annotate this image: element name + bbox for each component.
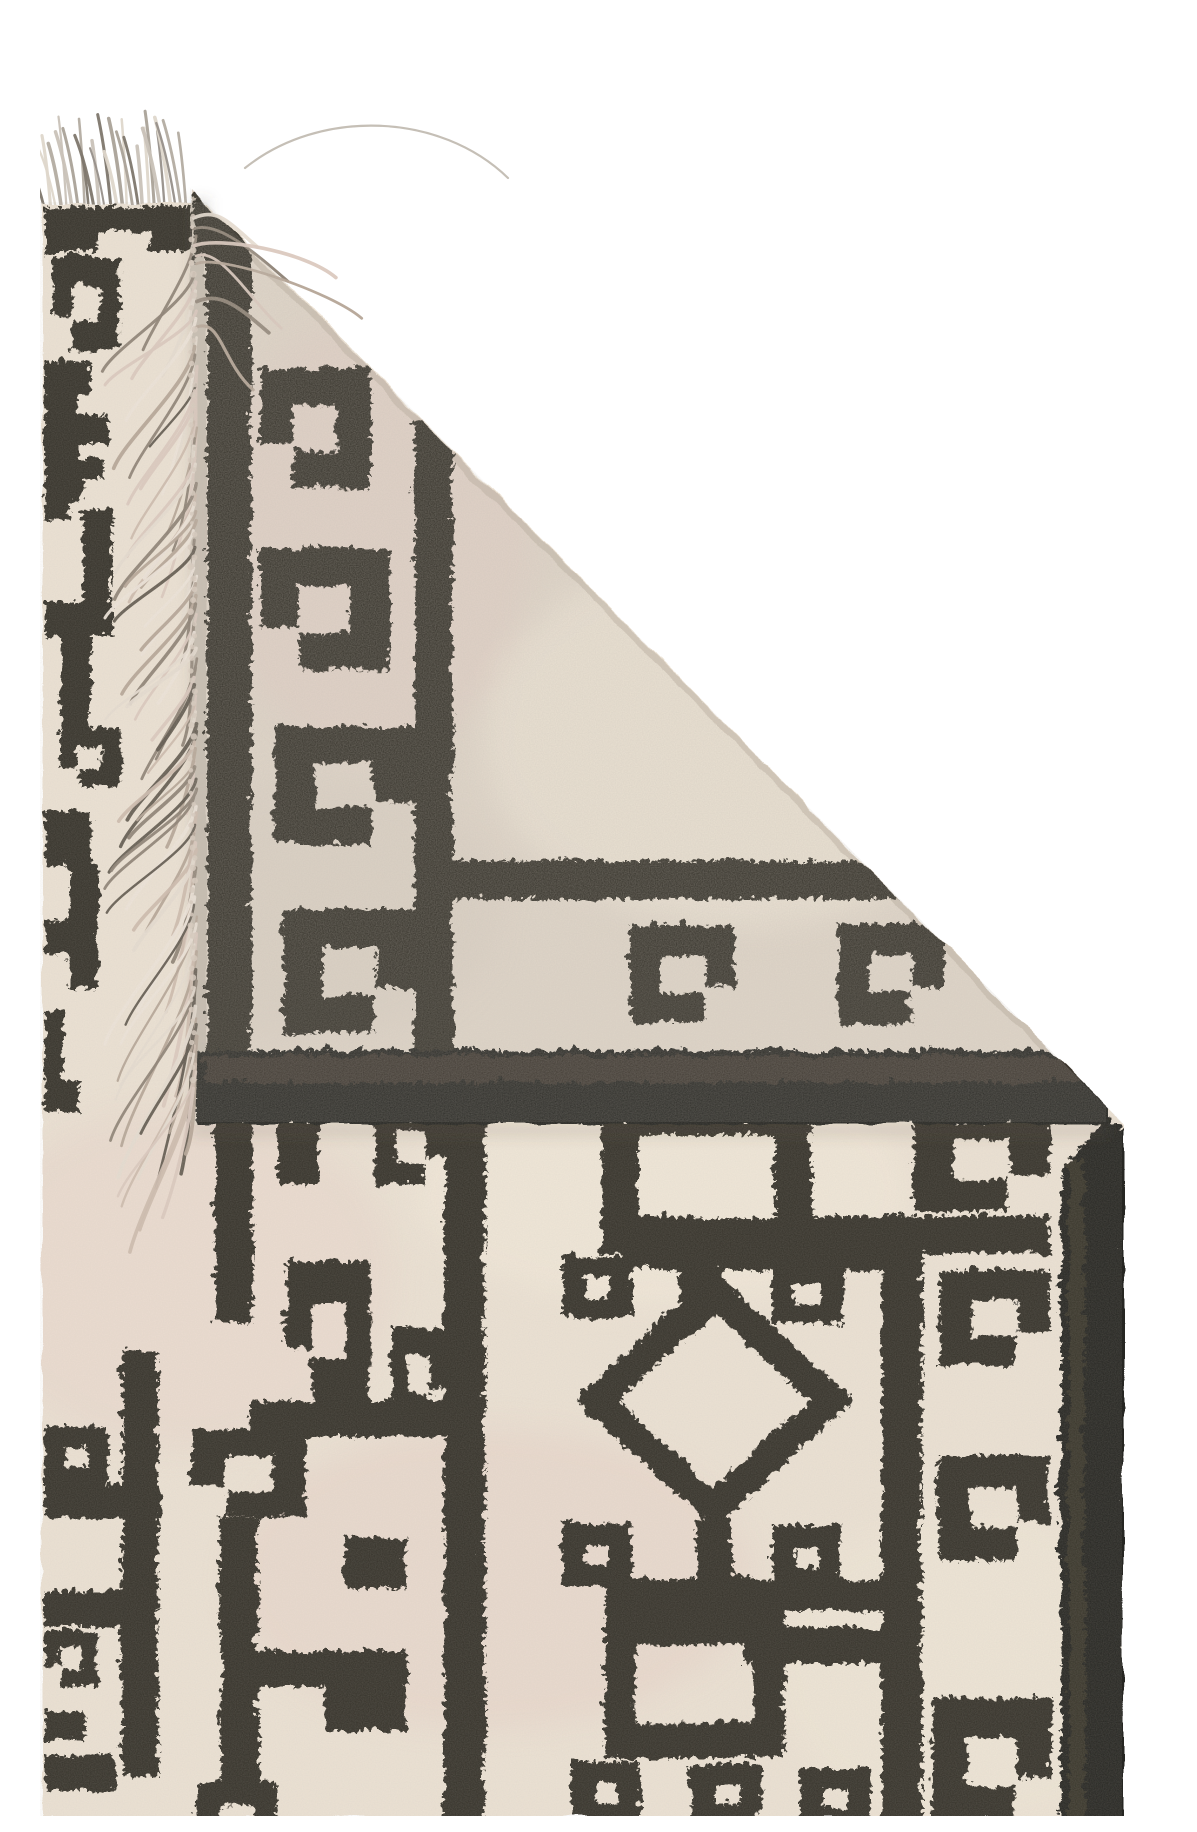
rug-product-photo: Product photograph of a handwoven black … — [40, 16, 1197, 1816]
rug-photo-svg — [40, 16, 1197, 1816]
